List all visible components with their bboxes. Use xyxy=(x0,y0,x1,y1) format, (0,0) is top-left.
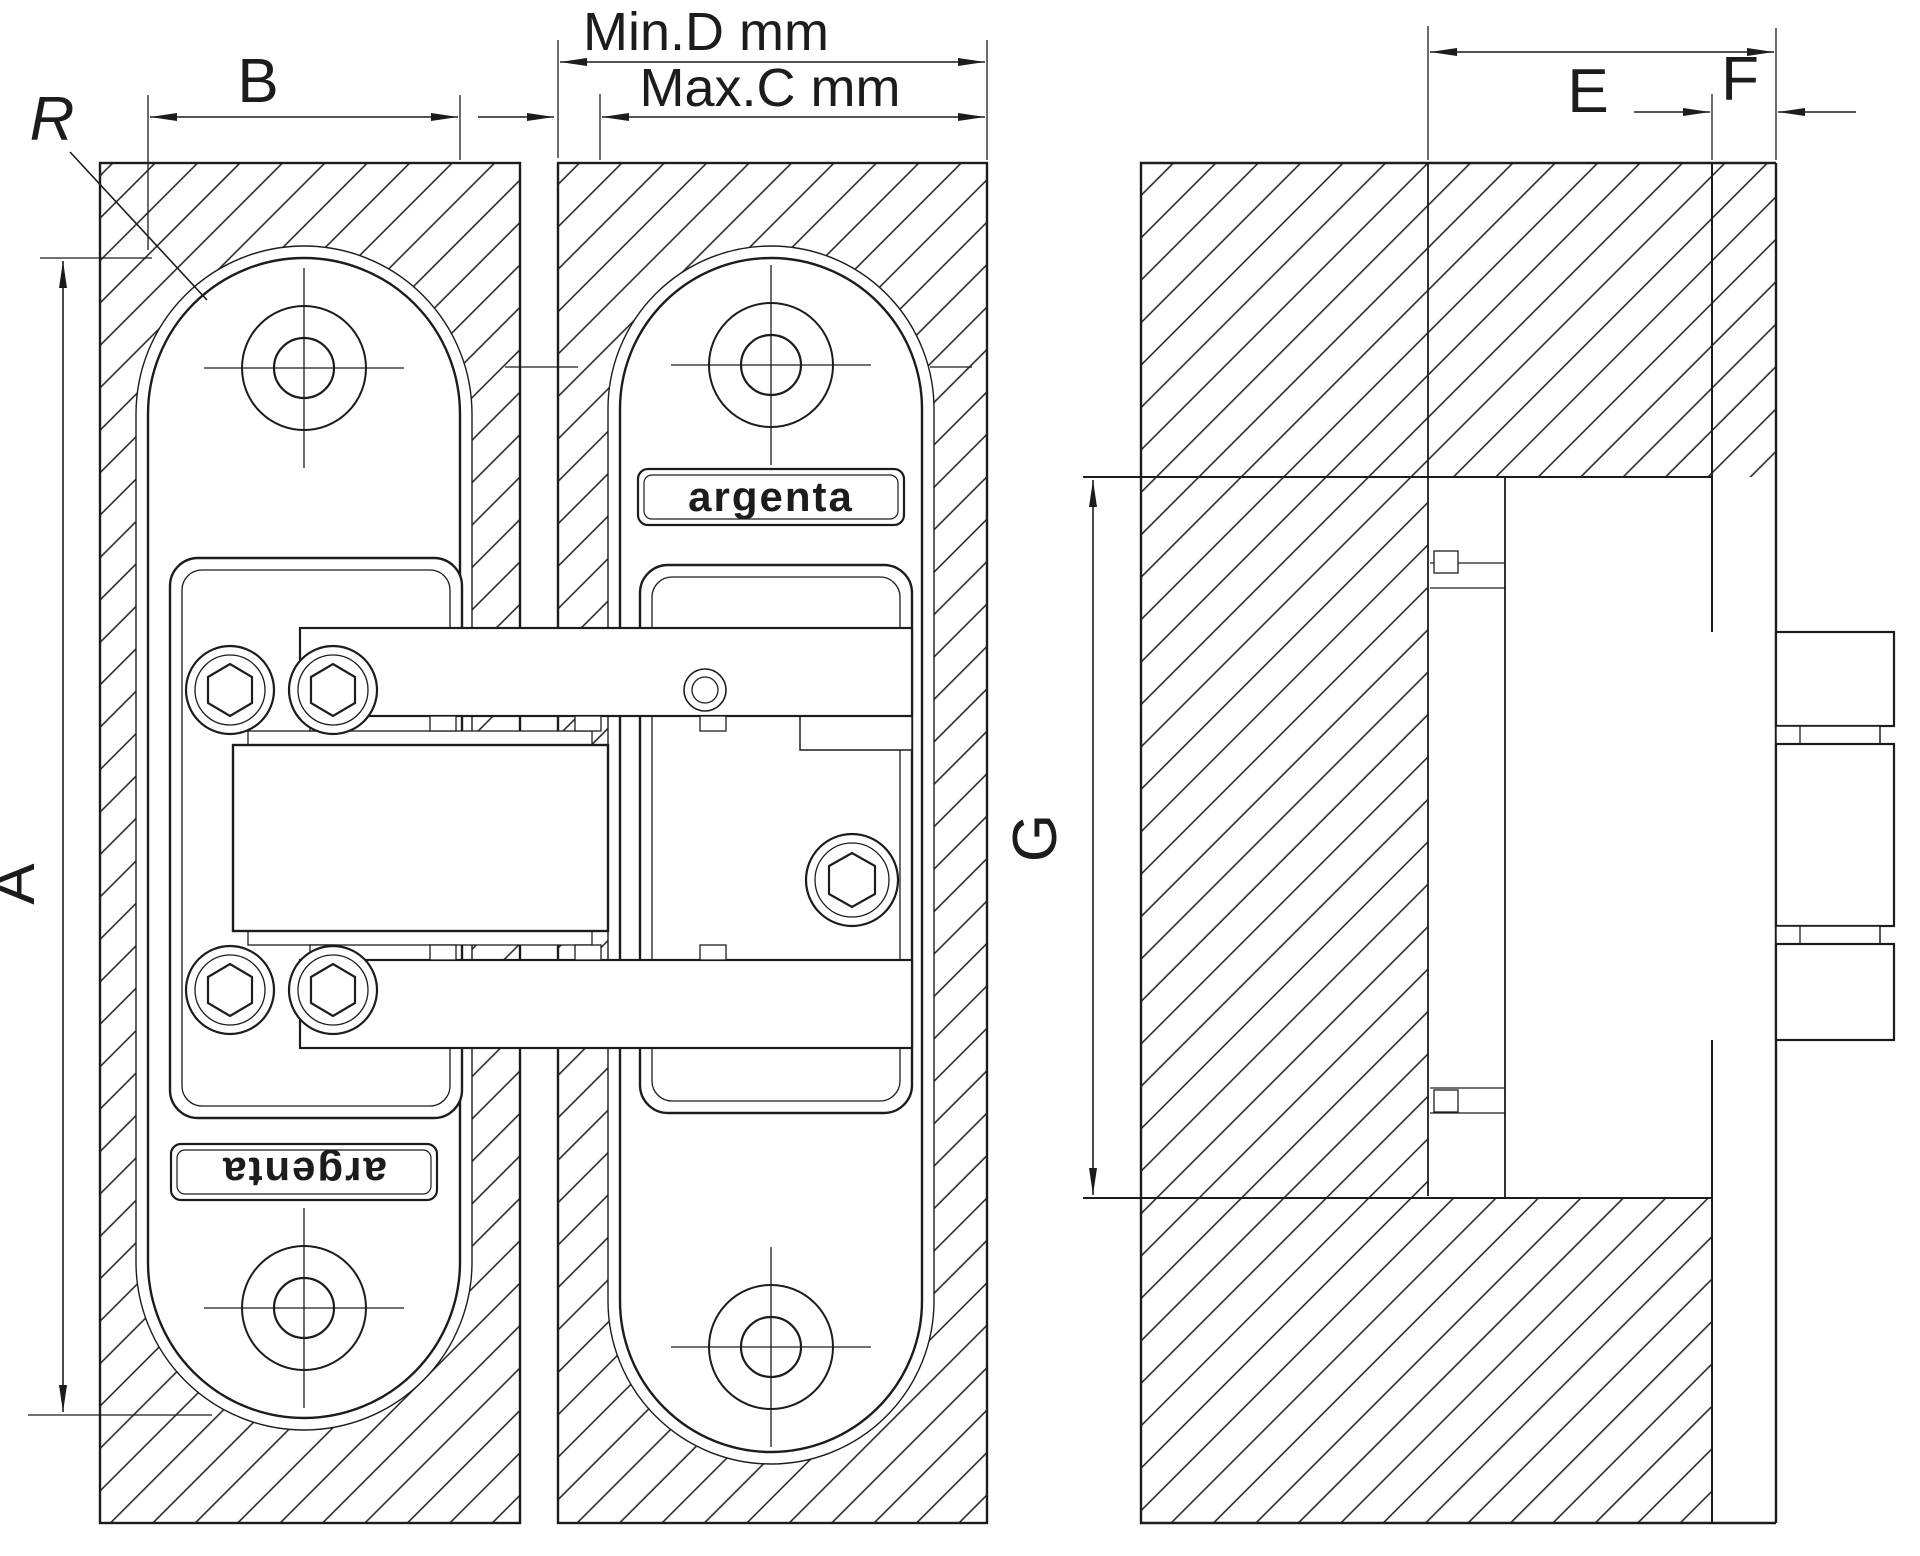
label-E: E xyxy=(1567,57,1608,126)
side-top-band xyxy=(1141,163,1712,477)
front-view: argenta argenta xyxy=(0,2,987,1523)
slider-body xyxy=(233,745,608,931)
side-view: E F G xyxy=(1001,26,1894,1523)
link-arm-bottom xyxy=(300,960,912,1048)
brand-text: argenta xyxy=(688,473,854,520)
hinge-technical-drawing: argenta argenta xyxy=(0,0,1920,1556)
label-A: A xyxy=(0,863,48,905)
hinge-barrel-side xyxy=(1776,632,1894,1040)
label-maxC: Max.C mm xyxy=(640,58,901,118)
label-G: G xyxy=(1001,814,1070,862)
label-F: F xyxy=(1721,45,1759,114)
brand-box-right-plate: argenta xyxy=(638,469,904,525)
label-B: B xyxy=(237,47,278,116)
label-R: R xyxy=(30,85,75,154)
pivot-washer xyxy=(684,669,726,711)
technical-drawing-page: argenta argenta xyxy=(0,0,1920,1556)
brand-box-left-plate-rotated: argenta xyxy=(171,1144,437,1200)
label-minD: Min.D mm xyxy=(583,2,829,62)
hinge-mechanism xyxy=(170,558,912,1118)
link-arm-top xyxy=(300,628,912,716)
side-left-column xyxy=(1141,477,1428,1198)
brand-text-mirrored: argenta xyxy=(221,1149,387,1196)
side-bottom-band xyxy=(1141,1198,1712,1523)
side-cover-strip-top xyxy=(1712,163,1776,477)
